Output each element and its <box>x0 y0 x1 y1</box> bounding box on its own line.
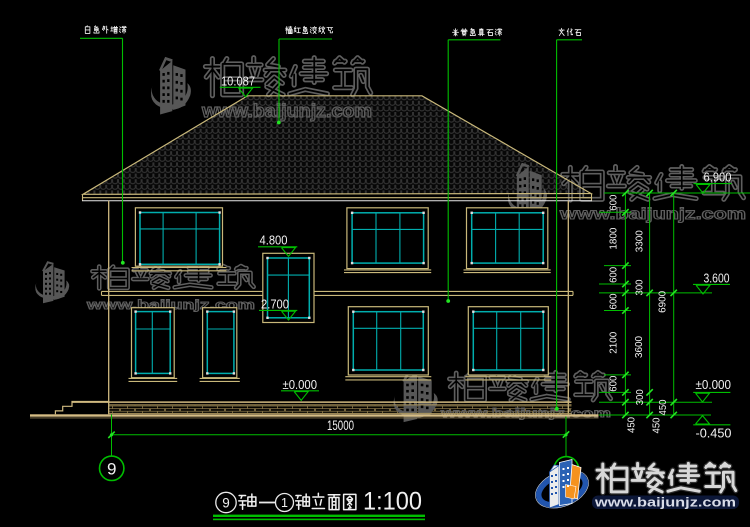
svg-text:3.600: 3.600 <box>704 272 730 286</box>
svg-text:600: 600 <box>608 195 620 211</box>
svg-text:600: 600 <box>608 376 620 392</box>
svg-text:6900: 6900 <box>657 291 669 313</box>
svg-text:15000: 15000 <box>327 418 354 433</box>
svg-text:4.800: 4.800 <box>260 234 288 248</box>
svg-text:10.087: 10.087 <box>221 75 255 89</box>
svg-text:450: 450 <box>626 417 638 433</box>
svg-text:2.700: 2.700 <box>261 297 289 311</box>
svg-text:300: 300 <box>634 279 646 295</box>
svg-text:450: 450 <box>657 399 669 415</box>
svg-text:1:100: 1:100 <box>363 488 422 516</box>
svg-text:1: 1 <box>281 496 288 510</box>
svg-text:9: 9 <box>107 460 116 479</box>
svg-text:600: 600 <box>608 293 620 309</box>
svg-text:3600: 3600 <box>633 336 645 358</box>
svg-text:6.900: 6.900 <box>704 171 732 185</box>
svg-text:www.baijunjz.com: www.baijunjz.com <box>594 496 736 510</box>
svg-text:600: 600 <box>608 267 620 283</box>
svg-text:±0.000: ±0.000 <box>696 378 732 392</box>
svg-text:2100: 2100 <box>608 332 620 354</box>
svg-text:9: 9 <box>222 496 230 511</box>
svg-text:-0.450: -0.450 <box>696 427 732 441</box>
svg-text:450: 450 <box>651 417 663 433</box>
svg-text:300: 300 <box>634 389 646 405</box>
svg-text:1800: 1800 <box>608 227 620 249</box>
svg-text:www.baijunjz.com: www.baijunjz.com <box>201 101 372 121</box>
svg-text:www.baijunjz.com: www.baijunjz.com <box>559 206 746 223</box>
svg-text:±0.000: ±0.000 <box>283 378 318 392</box>
svg-text:3300: 3300 <box>634 230 646 252</box>
